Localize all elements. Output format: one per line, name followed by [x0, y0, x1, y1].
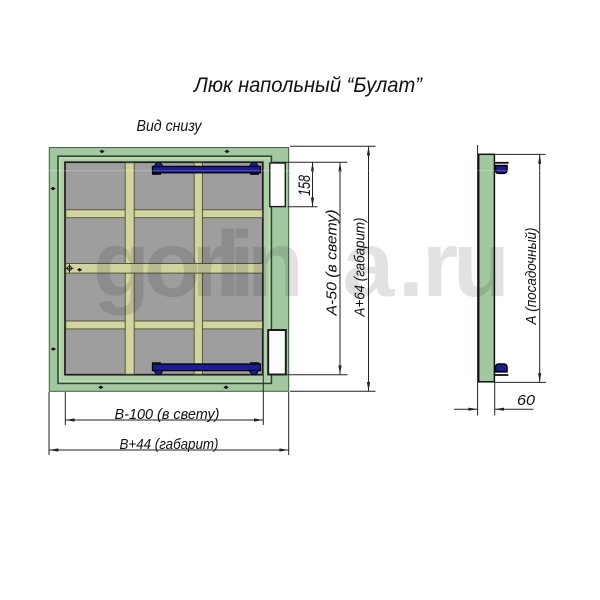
- svg-text:158: 158: [295, 175, 314, 196]
- svg-text:А (посадочный): А (посадочный): [523, 228, 540, 326]
- svg-text:Люк напольный “Булат”: Люк напольный “Булат”: [192, 73, 423, 97]
- svg-text:gorlina.ru: gorlina.ru: [93, 212, 510, 316]
- svg-text:А-50 (в свету): А-50 (в свету): [324, 210, 341, 317]
- svg-text:Вид снизу: Вид снизу: [137, 118, 203, 135]
- svg-text:60: 60: [517, 392, 536, 409]
- svg-text:В-100 (в свету): В-100 (в свету): [115, 406, 220, 423]
- svg-text:В+44 (габарит): В+44 (габарит): [120, 436, 219, 453]
